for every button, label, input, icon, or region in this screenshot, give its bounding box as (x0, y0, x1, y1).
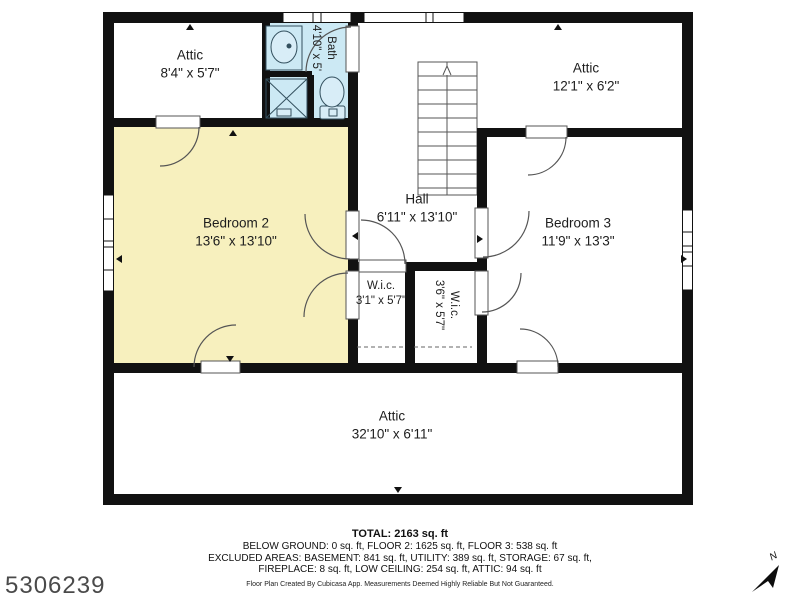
room-label-attic-top-right: Attic 12'1" x 6'2" (553, 59, 620, 94)
staircase-icon (418, 62, 477, 195)
room-dims: 11'9" x 13'3" (541, 232, 614, 250)
room-name: Bedroom 3 (541, 214, 614, 232)
room-name: Attic (352, 407, 433, 425)
room-label-wic-right: W.i.c. 3'6" x 5'7" (431, 280, 461, 330)
room-dims: 8'4" x 5'7" (160, 64, 219, 82)
room-label-bedroom-3: Bedroom 3 11'9" x 13'3" (541, 214, 614, 249)
room-name: Attic (160, 46, 219, 64)
room-label-wic-left: W.i.c. 3'1" x 5'7" (356, 279, 406, 309)
room-dims: 12'1" x 6'2" (553, 77, 620, 95)
room-dims: 13'6" x 13'10" (195, 232, 277, 250)
room-name: Bath (323, 25, 338, 71)
room-dims: 3'6" x 5'7" (431, 280, 446, 330)
room-name: W.i.c. (446, 280, 461, 330)
room-label-hall: Hall 6'11" x 13'10" (377, 190, 458, 225)
room-dims: 6'11" x 13'10" (377, 208, 458, 226)
room-label-bedroom-2: Bedroom 2 13'6" x 13'10" (195, 214, 277, 249)
room-label-bath: Bath 4'10" x 5' (308, 25, 338, 71)
area-summary: TOTAL: 2163 sq. ft BELOW GROUND: 0 sq. f… (0, 528, 800, 588)
room-name: Hall (377, 190, 458, 208)
room-dims: 4'10" x 5' (308, 25, 323, 71)
excluded-areas-line-2: FIREPLACE: 8 sq. ft, LOW CEILING: 254 sq… (0, 564, 800, 576)
excluded-areas-line: EXCLUDED AREAS: BASEMENT: 841 sq. ft, UT… (0, 553, 800, 565)
room-name: Attic (553, 59, 620, 77)
disclaimer: Floor Plan Created By Cubicasa App. Meas… (0, 581, 800, 588)
floorplan-page: N Attic 8'4" x 5'7" Bath 4'10" x 5' Atti… (0, 0, 800, 600)
room-label-attic-bottom: Attic 32'10" x 6'11" (352, 407, 433, 442)
room-dims: 32'10" x 6'11" (352, 425, 433, 443)
room-name: Bedroom 2 (195, 214, 277, 232)
total-area-line: TOTAL: 2163 sq. ft (0, 528, 800, 540)
room-label-attic-top-left: Attic 8'4" x 5'7" (160, 46, 219, 81)
listing-id: 5306239 (5, 572, 105, 600)
room-name: W.i.c. (356, 279, 406, 294)
room-dims: 3'1" x 5'7" (356, 294, 406, 309)
floor-areas-line: BELOW GROUND: 0 sq. ft, FLOOR 2: 1625 sq… (0, 541, 800, 553)
